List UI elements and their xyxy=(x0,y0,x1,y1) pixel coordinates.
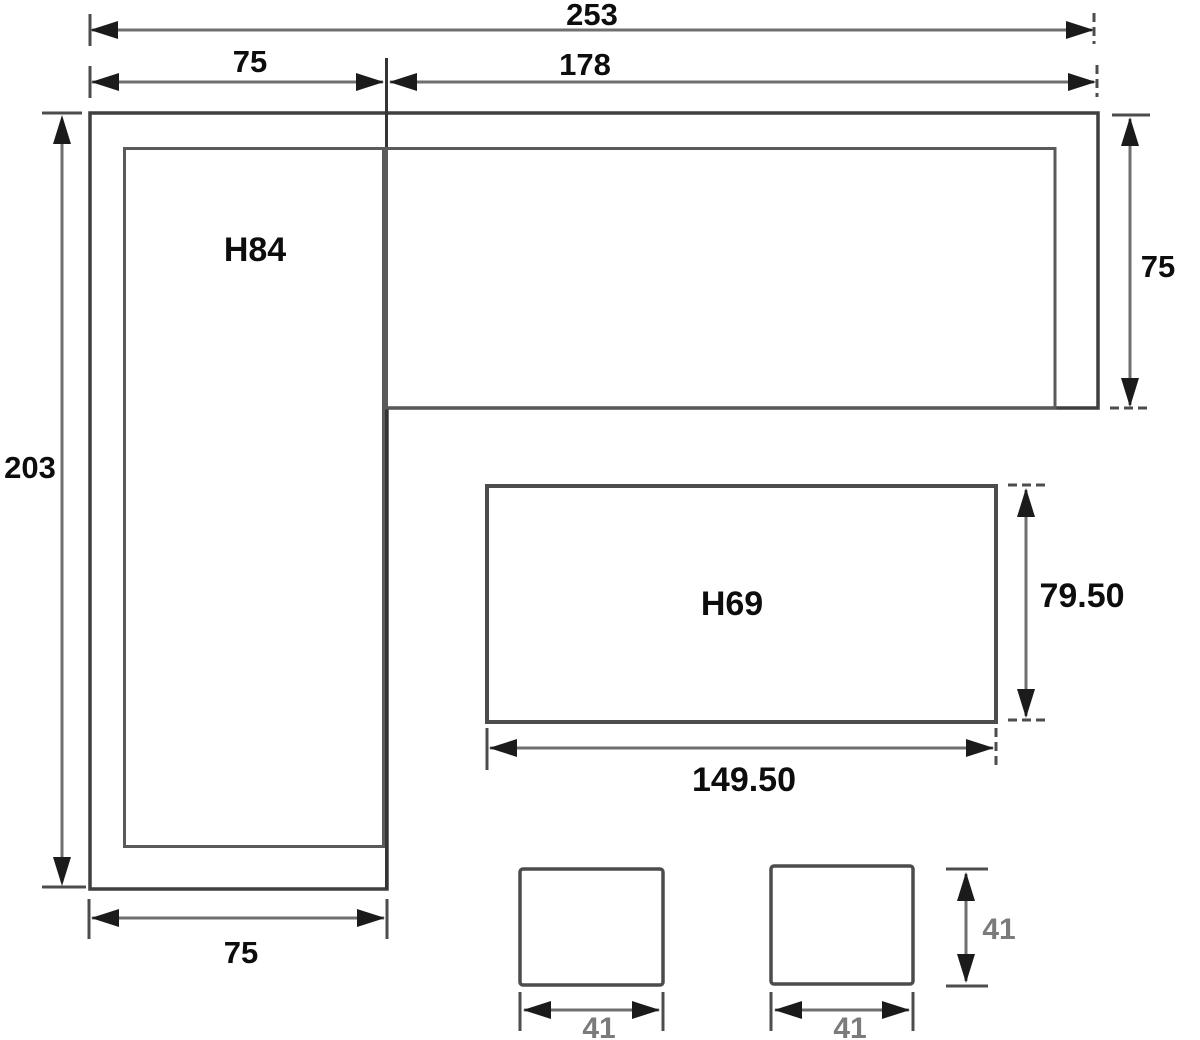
sofa-height-label: H84 xyxy=(224,231,286,269)
furniture-dimension-diagram: H84 H69 253 75 178 203 xyxy=(0,0,1200,1040)
arrowhead-up-icon xyxy=(957,872,975,901)
stool-2 xyxy=(771,866,913,984)
dim-stool-1-width: 41 xyxy=(520,992,663,1040)
diagram-canvas: H84 H69 253 75 178 203 xyxy=(0,0,1200,1040)
dim-left-section-width: 75 xyxy=(90,44,384,98)
dim-label-left-arm-width: 75 xyxy=(224,935,258,970)
dim-label-table-width: 149.50 xyxy=(692,761,796,799)
dim-table-depth: 79.50 xyxy=(1008,485,1125,720)
arrowhead-left-icon xyxy=(90,21,118,39)
dim-label-left-section-width: 75 xyxy=(233,44,267,79)
arrowhead-right-icon xyxy=(1068,73,1096,91)
sofa-chaise-cushion xyxy=(387,149,1056,409)
dim-table-width: 149.50 xyxy=(487,728,996,799)
stool-1 xyxy=(520,869,663,985)
arrowhead-up-icon xyxy=(1121,117,1139,146)
dim-left-arm-width: 75 xyxy=(89,899,387,970)
dim-chaise-depth: 75 xyxy=(1110,115,1175,408)
sofa-outline xyxy=(90,113,1098,889)
dim-label-chaise-section-width: 178 xyxy=(559,47,611,82)
dim-label-chaise-depth: 75 xyxy=(1141,249,1175,284)
table-height-label: H69 xyxy=(701,585,763,623)
arrowhead-right-icon xyxy=(882,1001,910,1019)
dim-overall-depth: 203 xyxy=(4,113,86,887)
arrowhead-up-icon xyxy=(1017,488,1035,517)
dim-overall-width: 253 xyxy=(90,0,1094,46)
arrowhead-right-icon xyxy=(356,73,384,91)
arrowhead-left-icon xyxy=(774,1001,802,1019)
dim-label-table-depth: 79.50 xyxy=(1039,577,1124,615)
arrowhead-left-icon xyxy=(389,73,417,91)
dim-label-overall-width: 253 xyxy=(566,0,618,32)
dim-stool-depth: 41 xyxy=(946,869,1016,986)
arrowhead-down-icon xyxy=(53,857,71,886)
dim-label-stool-1-width: 41 xyxy=(582,1012,615,1040)
dim-label-overall-depth: 203 xyxy=(4,450,56,485)
dim-stool-2-width: 41 xyxy=(771,992,913,1040)
arrowhead-right-icon xyxy=(357,909,385,927)
arrowhead-down-icon xyxy=(1121,378,1139,407)
dim-label-stool-depth: 41 xyxy=(982,913,1015,946)
arrowhead-down-icon xyxy=(1017,689,1035,718)
dim-chaise-section-width: 178 xyxy=(389,47,1097,97)
arrowhead-left-icon xyxy=(523,1001,551,1019)
arrowhead-right-icon xyxy=(1066,21,1094,39)
arrowhead-left-icon xyxy=(91,909,119,927)
arrowhead-left-icon xyxy=(91,73,119,91)
arrowhead-down-icon xyxy=(957,954,975,983)
arrowhead-left-icon xyxy=(489,739,517,757)
dim-label-stool-2-width: 41 xyxy=(833,1012,866,1040)
arrowhead-right-icon xyxy=(632,1001,660,1019)
arrowhead-up-icon xyxy=(53,115,71,144)
arrowhead-right-icon xyxy=(966,739,994,757)
